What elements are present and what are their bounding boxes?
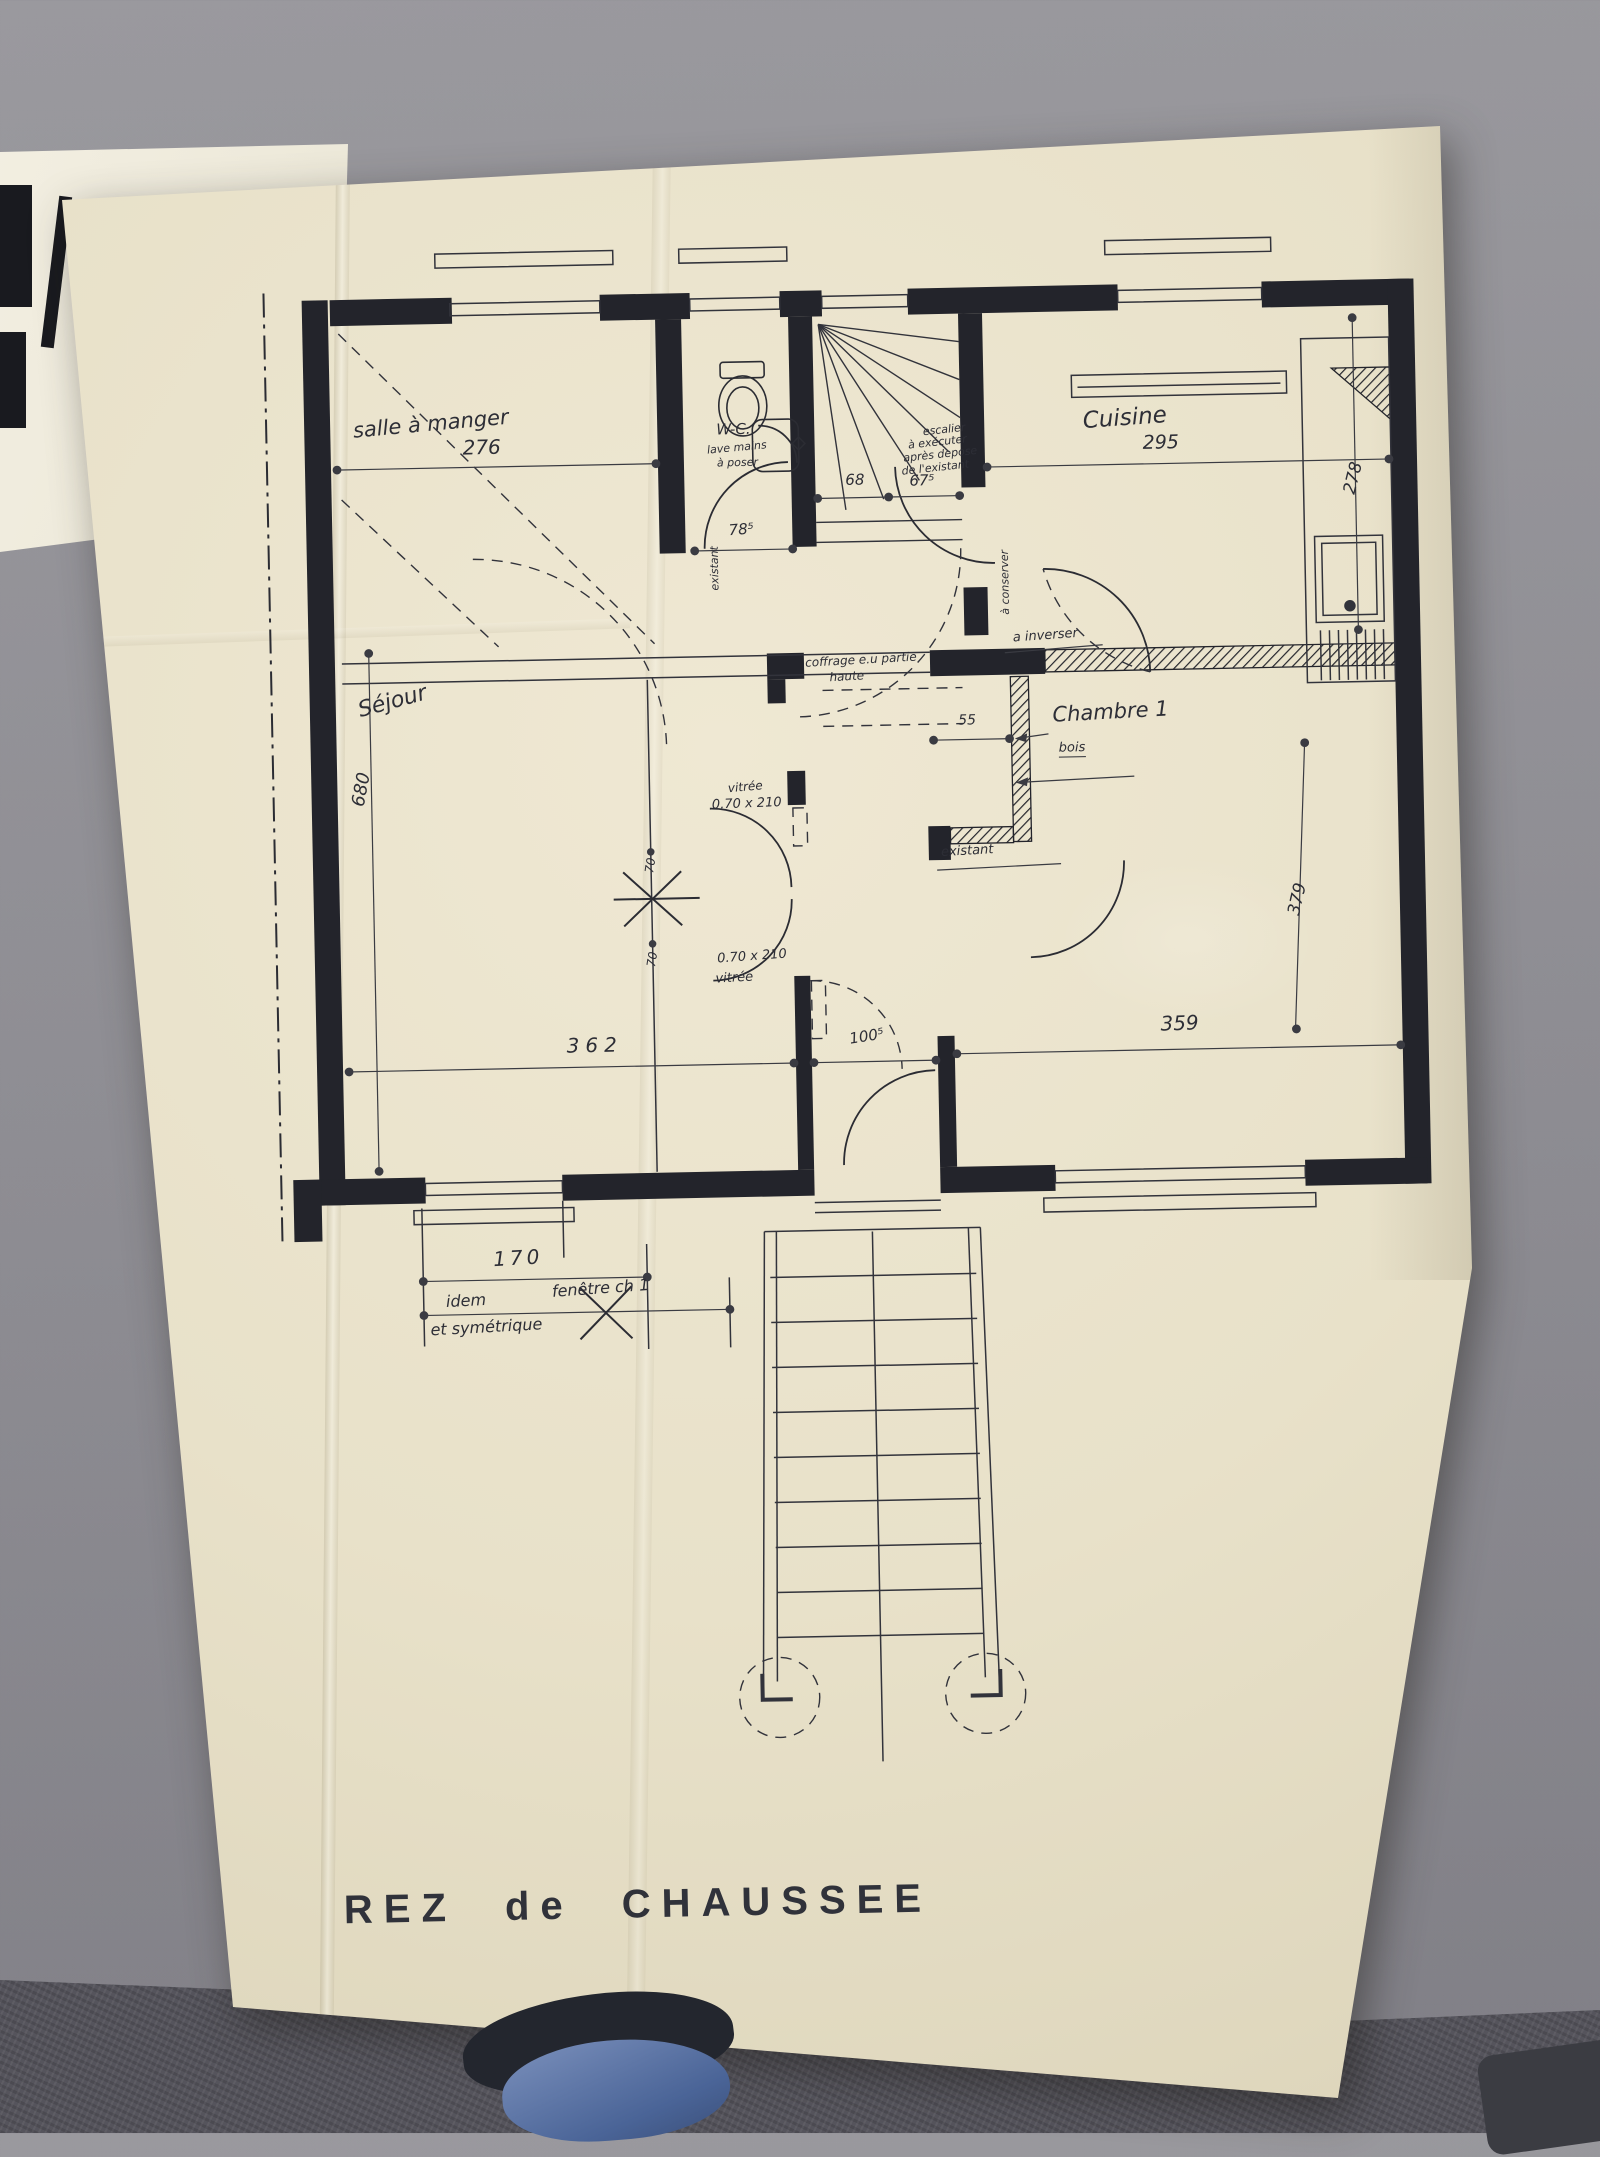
floor-plan-svg (0, 0, 1600, 2139)
wc-note-line2: à poser (717, 457, 758, 469)
entry-door-arc (842, 1070, 937, 1165)
chambre-door-arc (1029, 860, 1126, 957)
note-vitree-haut: vitrée (727, 779, 763, 795)
note-existant-wc: existant (709, 546, 721, 591)
dim-porte-haut: 70 (643, 857, 658, 874)
note-coffrage-line2: haute (829, 669, 864, 683)
dim-porte-vitree-haut: 0.70 x 210 (712, 796, 782, 812)
glazed-door-lower-arc (712, 899, 794, 981)
dim-escalier-a: 68 (845, 473, 864, 489)
dim-salle-largeur: 276 (462, 437, 501, 459)
dim-cloison-bois: 55 (958, 713, 976, 728)
dim-cuisine-largeur: 295 (1142, 433, 1179, 454)
dim-fenetre-largeur: 170 (493, 1246, 544, 1270)
exterior-staircase (753, 1227, 1002, 1764)
dim-chambre-largeur: 359 (1160, 1012, 1199, 1034)
property-line (263, 294, 282, 1244)
note-existant-chambre: existant (941, 843, 994, 860)
dashed-lines (338, 318, 1171, 1746)
note-a-conserver: à conserver (999, 550, 1012, 615)
thin-lines (334, 235, 1409, 1355)
dim-sejour-largeur: 362 (566, 1034, 623, 1056)
door-arcs (702, 418, 1160, 1168)
note-vitree-bas: vitrée (715, 971, 753, 987)
room-label-wc: W-C. (716, 422, 751, 438)
note-fenetre-idem: idem (446, 1292, 487, 1311)
dim-wc-largeur: 78⁵ (728, 521, 754, 539)
room-label-cuisine: Cuisine (1082, 403, 1168, 433)
note-bois: bois (1059, 741, 1086, 757)
floor-plan-drawing: salle à manger 276 W-C. lave mains à pos… (0, 0, 1600, 2139)
dim-porte-bas: 70 (645, 951, 660, 968)
photo-of-floor-plan: { "meta": { "document_type": "hand-drawn… (0, 0, 1600, 2133)
axis-marks (571, 871, 708, 1339)
glazed-door-upper-arc (710, 807, 792, 889)
